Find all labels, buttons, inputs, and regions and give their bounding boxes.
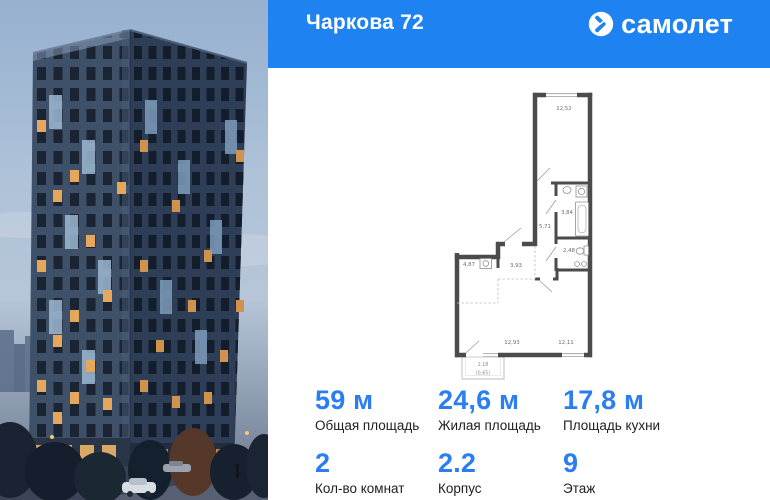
brand-name: самолет	[621, 11, 733, 37]
stat-label: Корпус	[438, 480, 563, 497]
building-photo	[0, 0, 268, 500]
stat-label: Жилая площадь	[438, 417, 563, 434]
room-area-label: 4,87	[463, 262, 475, 268]
stat-value: 9	[563, 449, 770, 478]
stat-total-area: 59 м Общая площадь	[315, 386, 438, 434]
floor-plan: 12,52 3,84 5,71 2,48 3,93 4,87 12,93 12,…	[448, 78, 606, 384]
listing-card: Чаркова 72 самолет	[0, 0, 770, 500]
balcony-area-label: 2,18	[478, 362, 489, 368]
stat-label: Кол-во комнат	[315, 480, 438, 497]
room-area-label: 5,71	[539, 224, 551, 230]
stat-value: 2.2	[438, 449, 563, 478]
stat-kitchen-area: 17,8 м Площадь кухни	[563, 386, 770, 434]
stats-row-areas: 59 м Общая площадь 24,6 м Жилая площадь …	[268, 386, 770, 434]
stat-label: Площадь кухни	[563, 417, 770, 434]
stat-living-area: 24,6 м Жилая площадь	[438, 386, 563, 434]
header-bar: Чаркова 72 самолет	[268, 0, 770, 68]
room-area-label: 2,48	[563, 248, 576, 254]
stat-label: Общая площадь	[315, 417, 438, 434]
balcony-coefficient-label: (0,65)	[476, 371, 491, 377]
room-area-label: 12,11	[558, 340, 573, 346]
room-area-label: 3,84	[561, 210, 574, 216]
stat-floor: 9 Этаж	[563, 449, 770, 497]
stat-value: 24,6 м	[438, 386, 563, 415]
samolet-logo-icon	[588, 11, 614, 37]
room-area-label: 3,93	[510, 263, 522, 269]
stat-building: 2.2 Корпус	[438, 449, 563, 497]
stat-label: Этаж	[563, 480, 770, 497]
info-panel: Чаркова 72 самолет	[268, 0, 770, 500]
project-title: Чаркова 72	[306, 11, 424, 35]
stats-row-details: 2 Кол-во комнат 2.2 Корпус 9 Этаж	[268, 449, 770, 497]
stat-value: 59 м	[315, 386, 438, 415]
stat-value: 17,8 м	[563, 386, 770, 415]
room-area-label: 12,52	[556, 106, 571, 112]
stat-value: 2	[315, 449, 438, 478]
stat-rooms-count: 2 Кол-во комнат	[315, 449, 438, 497]
building-render-image	[0, 0, 268, 500]
room-area-label: 12,93	[504, 340, 519, 346]
brand-logo: самолет	[588, 11, 733, 37]
